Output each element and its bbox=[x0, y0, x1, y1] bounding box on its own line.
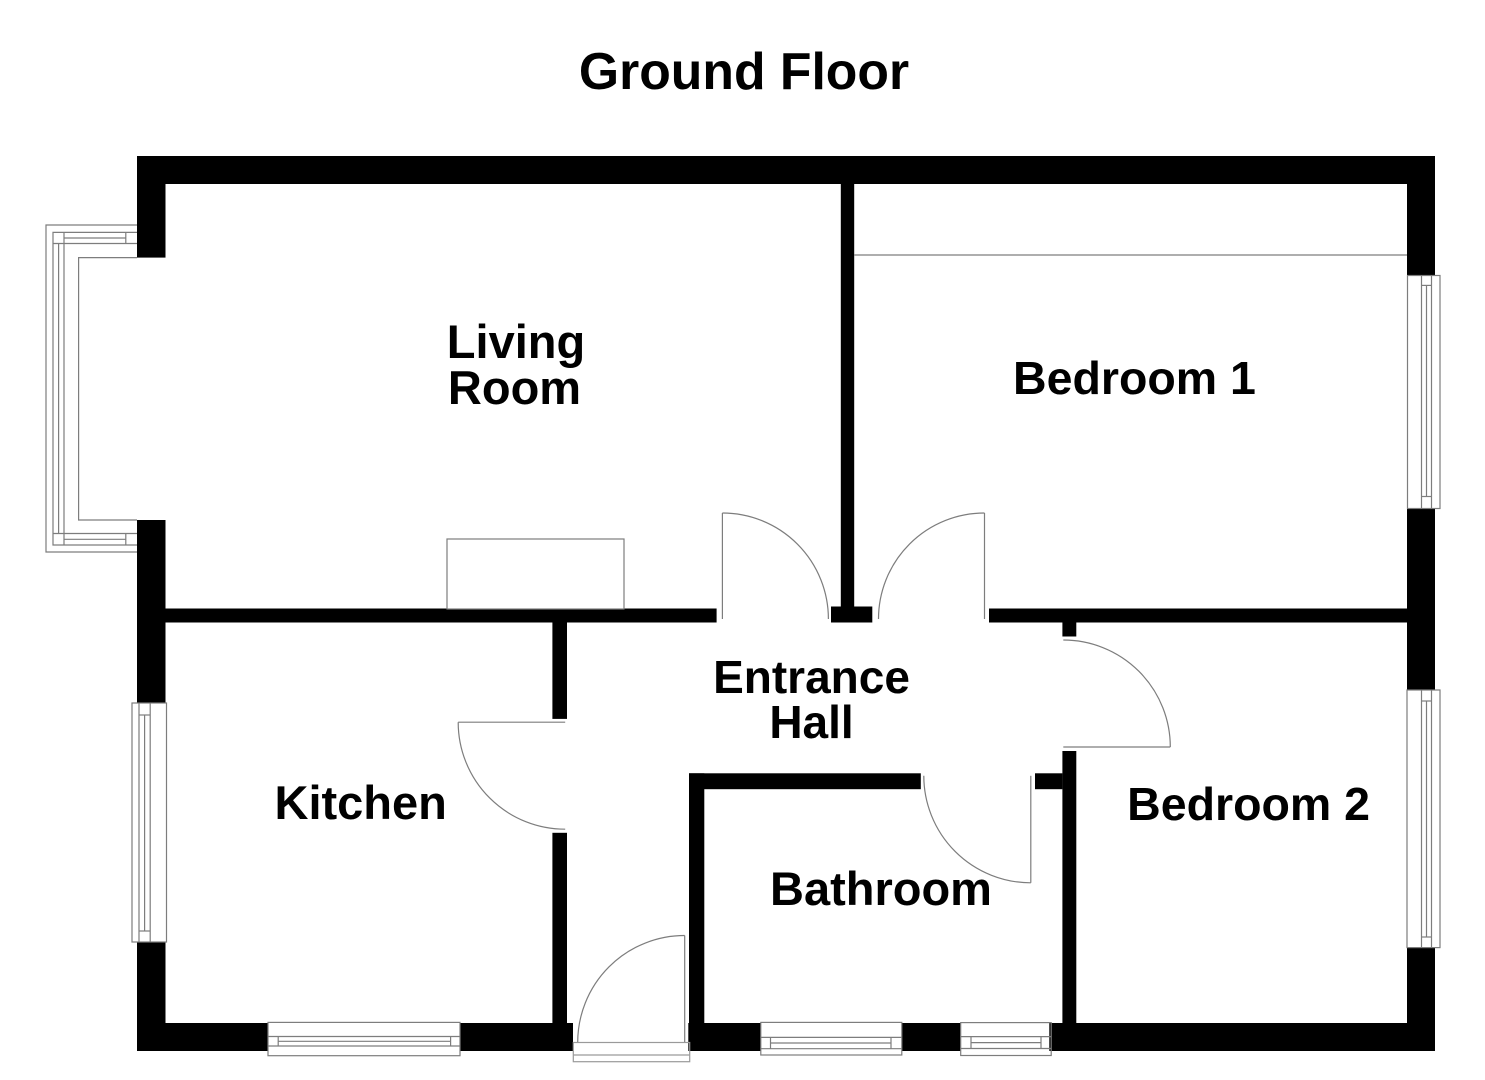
svg-text:Bedroom 1: Bedroom 1 bbox=[1013, 352, 1256, 404]
svg-text:Bedroom 2: Bedroom 2 bbox=[1127, 778, 1370, 830]
svg-text:Hall: Hall bbox=[769, 696, 853, 748]
svg-text:Kitchen: Kitchen bbox=[275, 776, 447, 829]
svg-text:Bathroom: Bathroom bbox=[770, 862, 992, 915]
svg-text:Room: Room bbox=[448, 361, 581, 414]
svg-text:Ground Floor: Ground Floor bbox=[579, 42, 909, 100]
